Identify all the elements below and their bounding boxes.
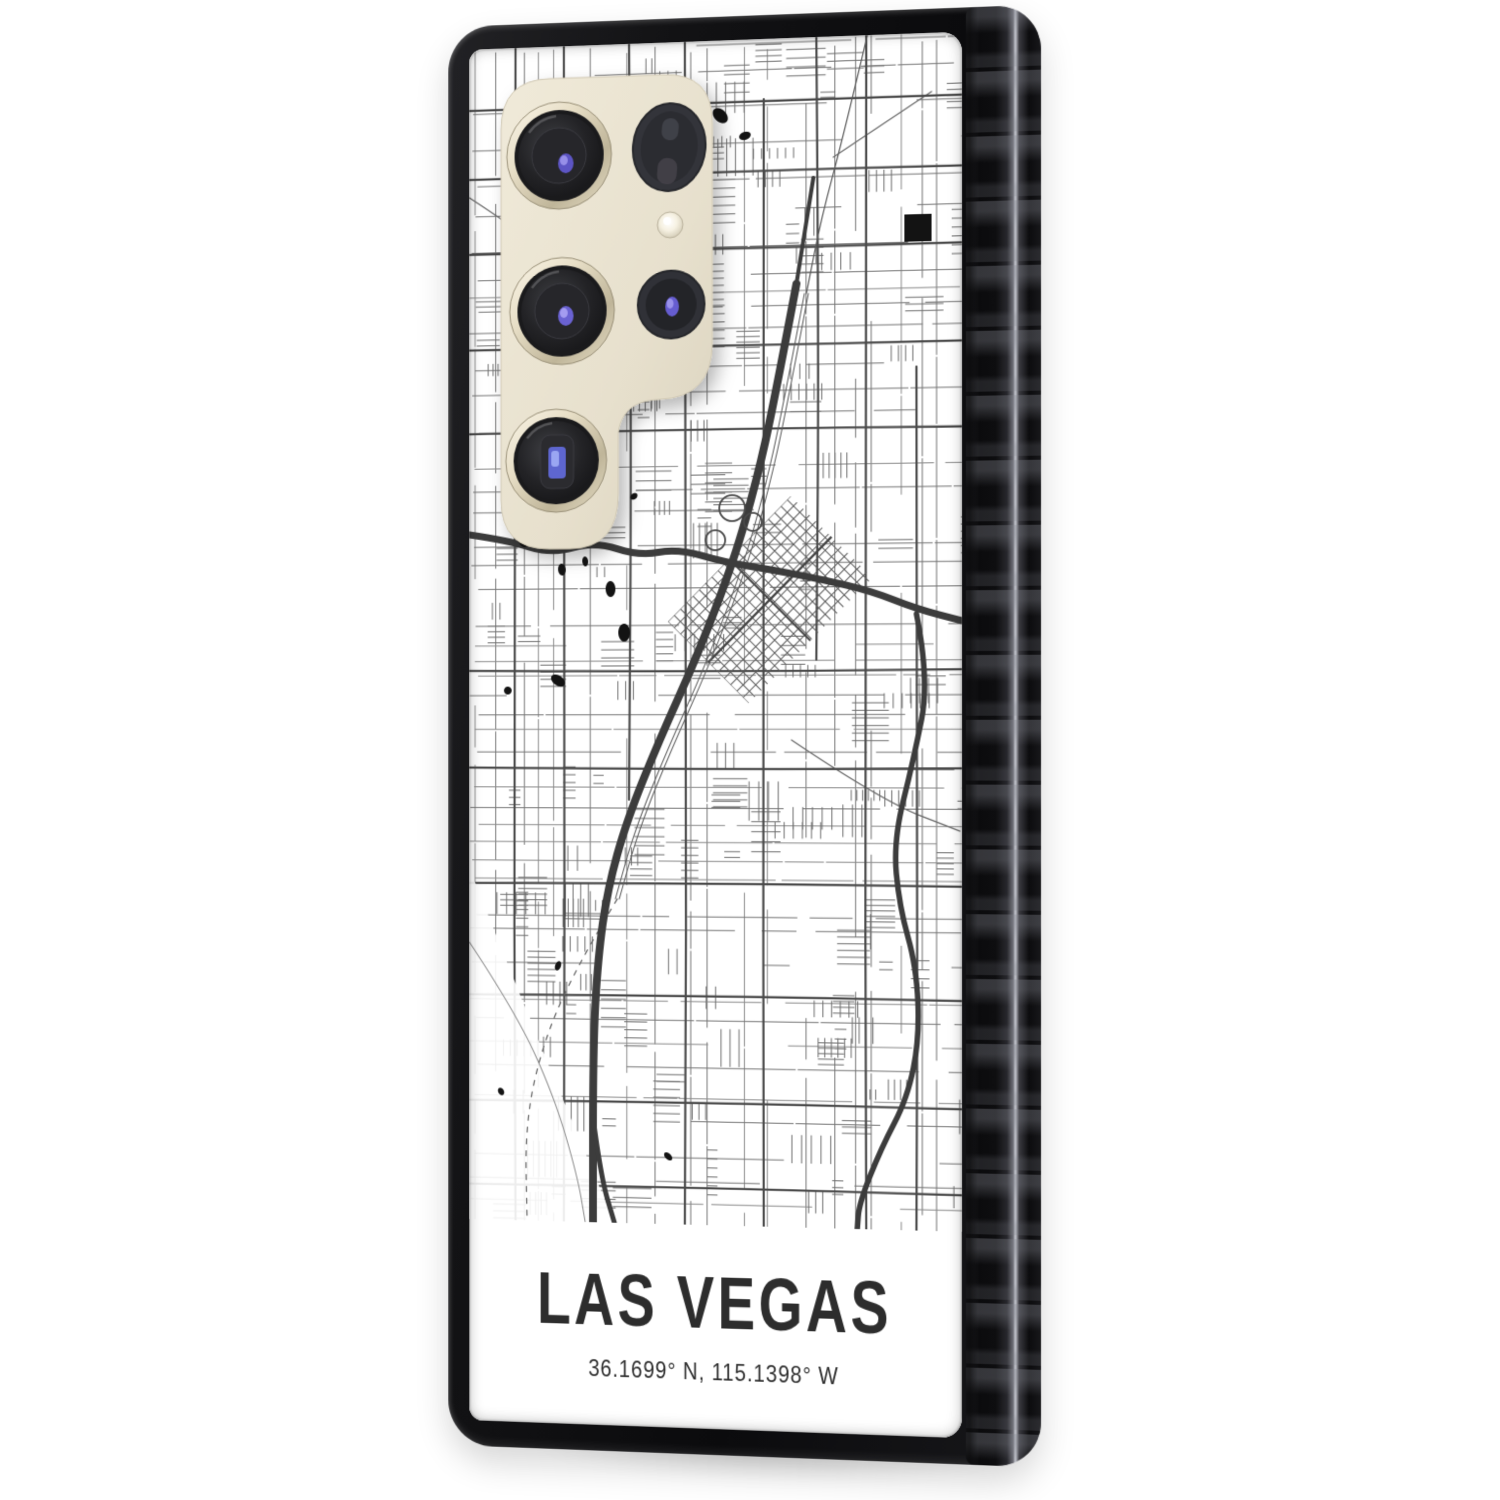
phone-case: LAS VEGAS 36.1699° N, 115.1398° W [448,5,1041,1468]
camera-lens [638,270,705,339]
camera-module [448,5,1041,1468]
product-photo: LAS VEGAS 36.1699° N, 115.1398° W [0,0,1500,1500]
flash [657,212,682,239]
camera-lens [506,408,607,512]
